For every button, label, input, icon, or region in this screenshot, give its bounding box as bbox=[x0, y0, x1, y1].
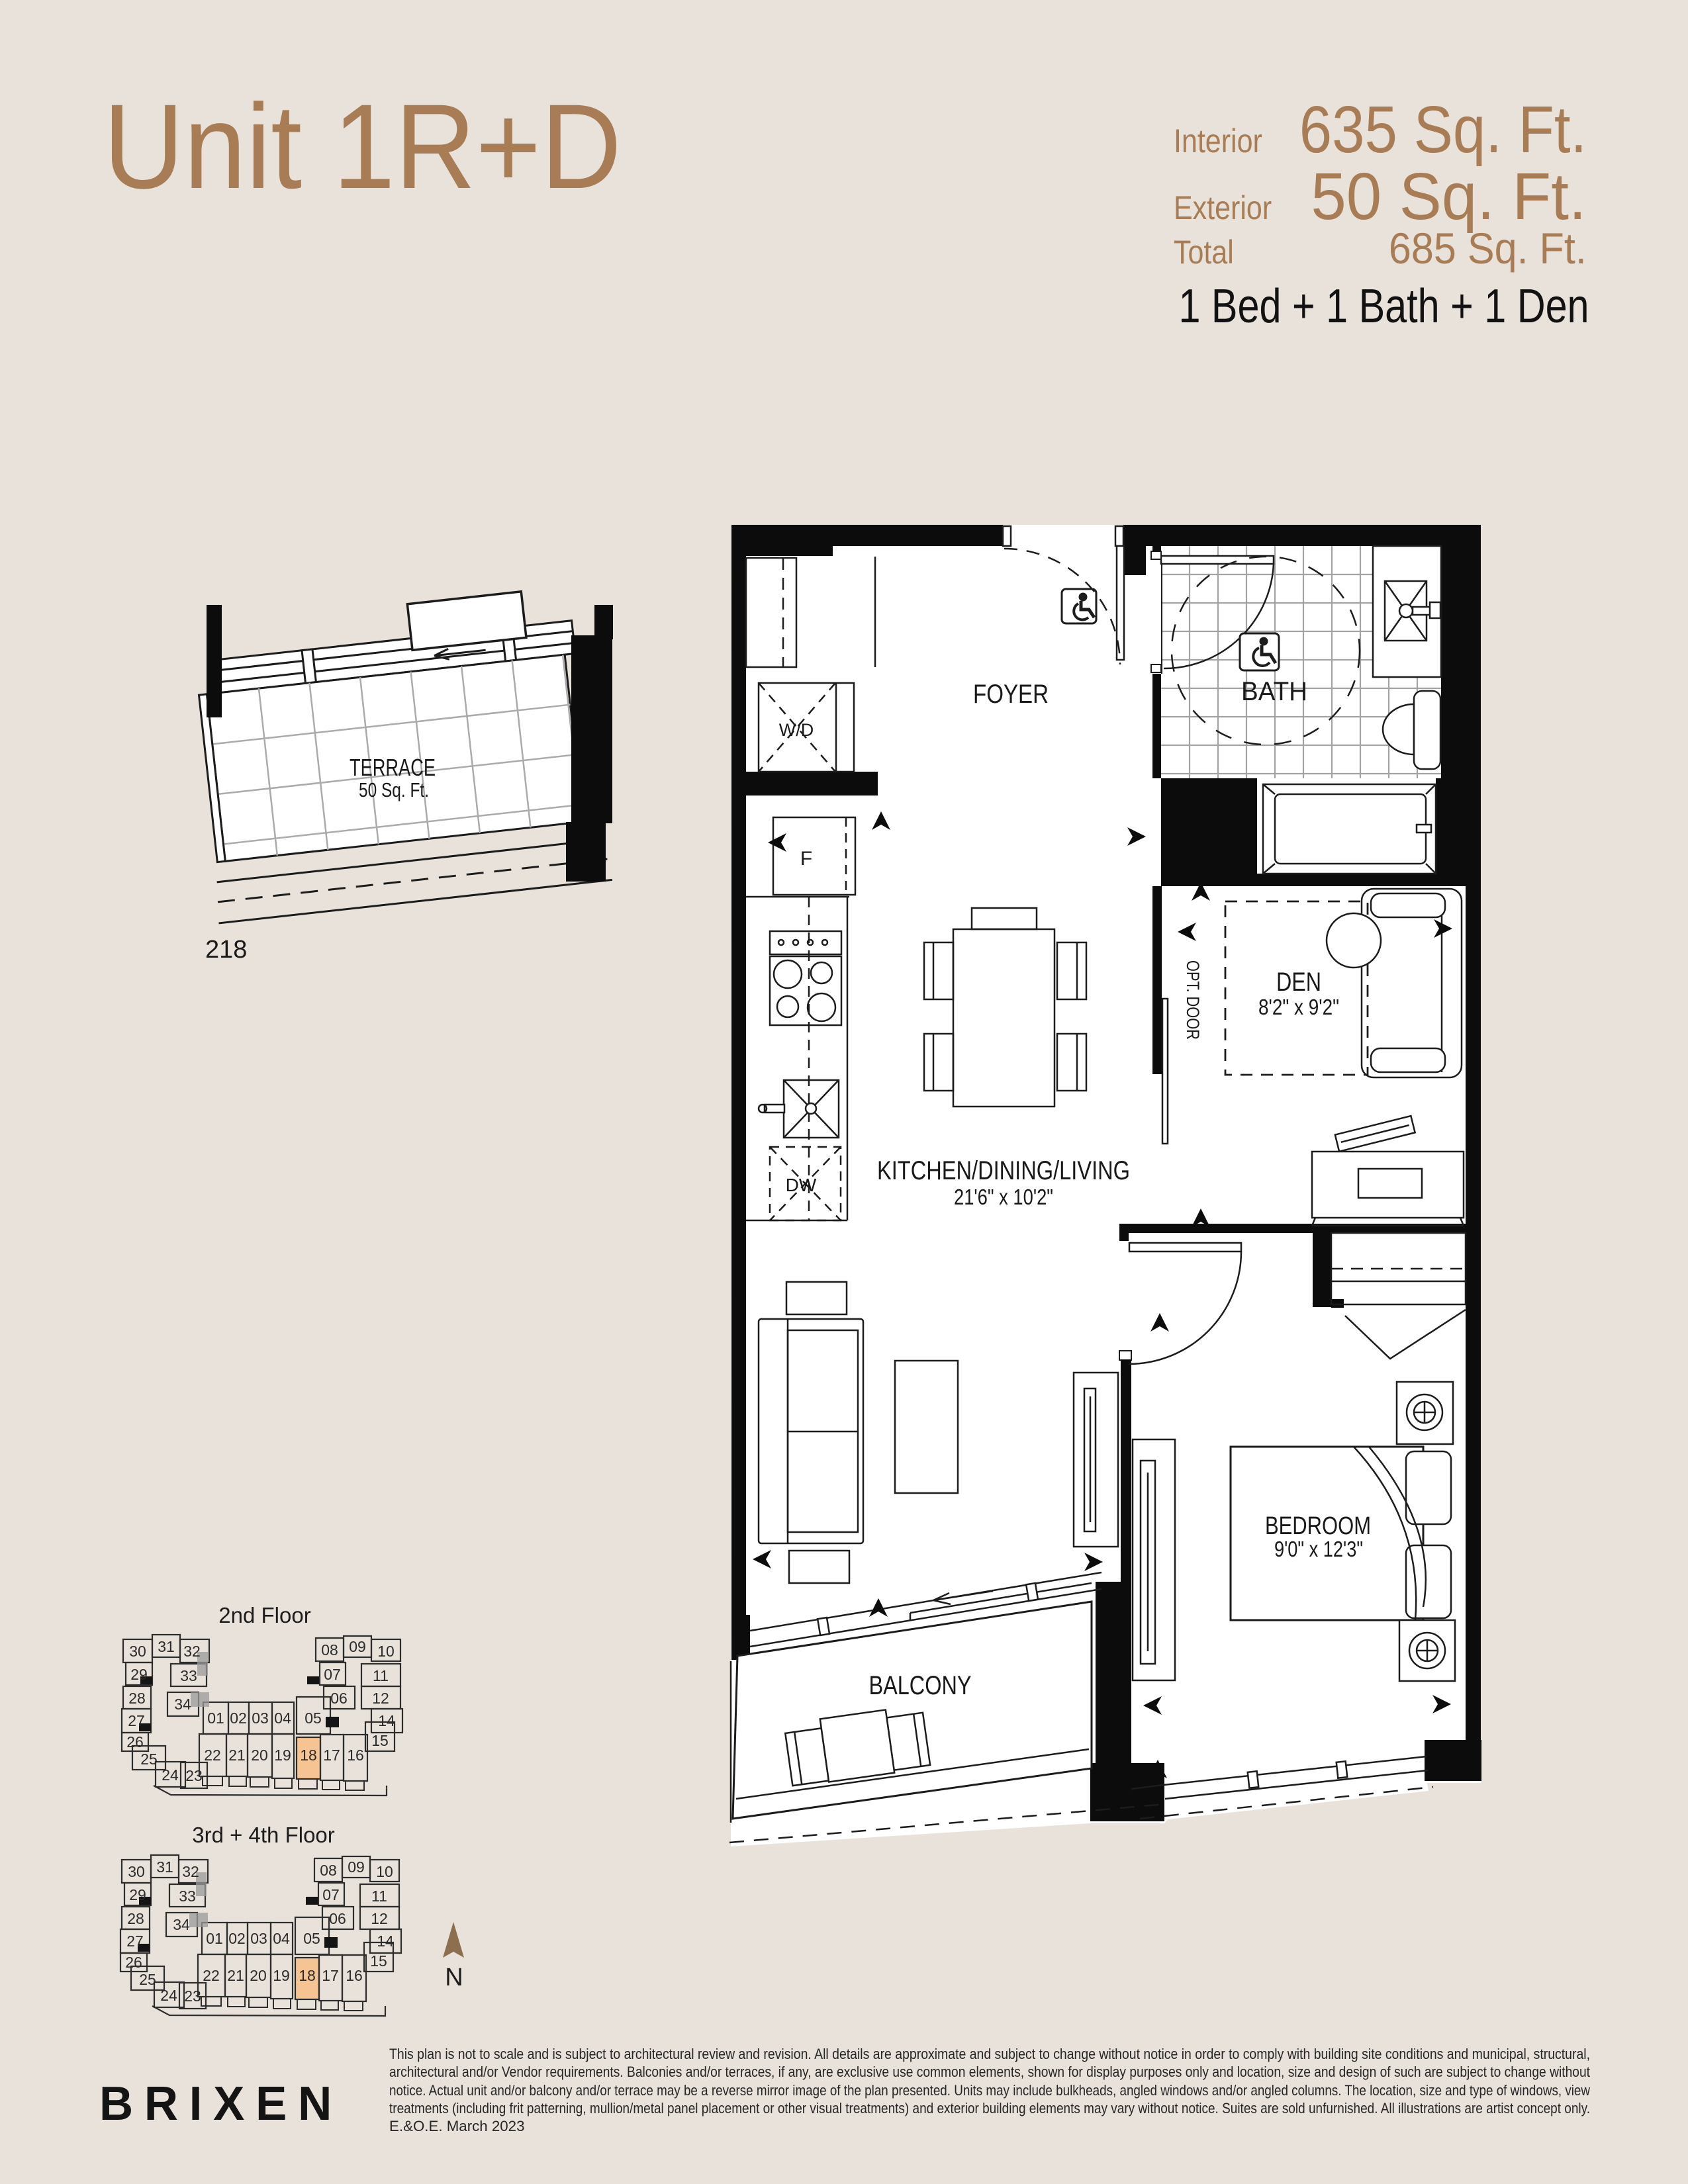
svg-text:21'6" x 10'2": 21'6" x 10'2" bbox=[954, 1185, 1053, 1209]
svg-text:N: N bbox=[445, 1964, 463, 1991]
svg-text:07: 07 bbox=[324, 1666, 341, 1683]
svg-text:DW: DW bbox=[786, 1175, 817, 1195]
svg-text:18: 18 bbox=[300, 1747, 317, 1764]
svg-text:15: 15 bbox=[371, 1732, 389, 1749]
svg-text:8'2" x 9'2": 8'2" x 9'2" bbox=[1258, 995, 1339, 1019]
svg-text:BATH: BATH bbox=[1241, 677, 1307, 706]
svg-text:16: 16 bbox=[347, 1747, 364, 1764]
svg-text:06: 06 bbox=[330, 1690, 348, 1707]
svg-text:12: 12 bbox=[372, 1690, 389, 1707]
svg-text:DEN: DEN bbox=[1276, 968, 1321, 997]
svg-text:10: 10 bbox=[377, 1643, 395, 1660]
svg-text:02: 02 bbox=[230, 1709, 247, 1727]
svg-text:27: 27 bbox=[128, 1712, 145, 1729]
svg-text:03: 03 bbox=[252, 1709, 269, 1727]
svg-text:33: 33 bbox=[180, 1667, 197, 1684]
svg-text:25: 25 bbox=[140, 1751, 158, 1768]
svg-text:9'0" x 12'3": 9'0" x 12'3" bbox=[1274, 1537, 1363, 1561]
svg-text:04: 04 bbox=[274, 1709, 291, 1727]
svg-text:21: 21 bbox=[228, 1747, 246, 1764]
svg-text:W/D: W/D bbox=[779, 720, 814, 740]
svg-text:BALCONY: BALCONY bbox=[869, 1671, 972, 1700]
svg-text:01: 01 bbox=[207, 1709, 224, 1727]
svg-text:KITCHEN/DINING/LIVING: KITCHEN/DINING/LIVING bbox=[877, 1156, 1130, 1185]
svg-text:FOYER: FOYER bbox=[973, 680, 1049, 709]
svg-text:22: 22 bbox=[204, 1747, 221, 1764]
svg-text:14: 14 bbox=[378, 1712, 395, 1729]
svg-text:23: 23 bbox=[185, 1767, 203, 1784]
svg-text:20: 20 bbox=[251, 1747, 268, 1764]
svg-text:TERRACE: TERRACE bbox=[350, 754, 436, 781]
svg-text:F: F bbox=[800, 848, 812, 870]
svg-text:29: 29 bbox=[130, 1666, 148, 1683]
svg-text:09: 09 bbox=[349, 1638, 366, 1655]
svg-text:30: 30 bbox=[129, 1643, 146, 1660]
svg-text:BEDROOM: BEDROOM bbox=[1265, 1512, 1371, 1540]
svg-text:32: 32 bbox=[183, 1643, 201, 1660]
svg-text:34: 34 bbox=[174, 1696, 191, 1713]
svg-text:28: 28 bbox=[128, 1690, 146, 1707]
svg-text:11: 11 bbox=[373, 1667, 389, 1684]
svg-text:26: 26 bbox=[126, 1733, 144, 1751]
svg-text:2nd Floor: 2nd Floor bbox=[218, 1603, 310, 1627]
svg-text:05: 05 bbox=[305, 1709, 322, 1727]
svg-text:OPT. DOOR: OPT. DOOR bbox=[1183, 960, 1203, 1040]
svg-text:08: 08 bbox=[321, 1641, 338, 1659]
svg-text:3rd + 4th Floor: 3rd + 4th Floor bbox=[192, 1823, 335, 1847]
svg-text:31: 31 bbox=[158, 1638, 175, 1655]
svg-text:218: 218 bbox=[205, 936, 247, 964]
svg-text:24: 24 bbox=[162, 1766, 179, 1784]
svg-text:19: 19 bbox=[274, 1747, 291, 1764]
svg-text:17: 17 bbox=[323, 1747, 340, 1764]
svg-text:50 Sq. Ft.: 50 Sq. Ft. bbox=[359, 778, 429, 801]
